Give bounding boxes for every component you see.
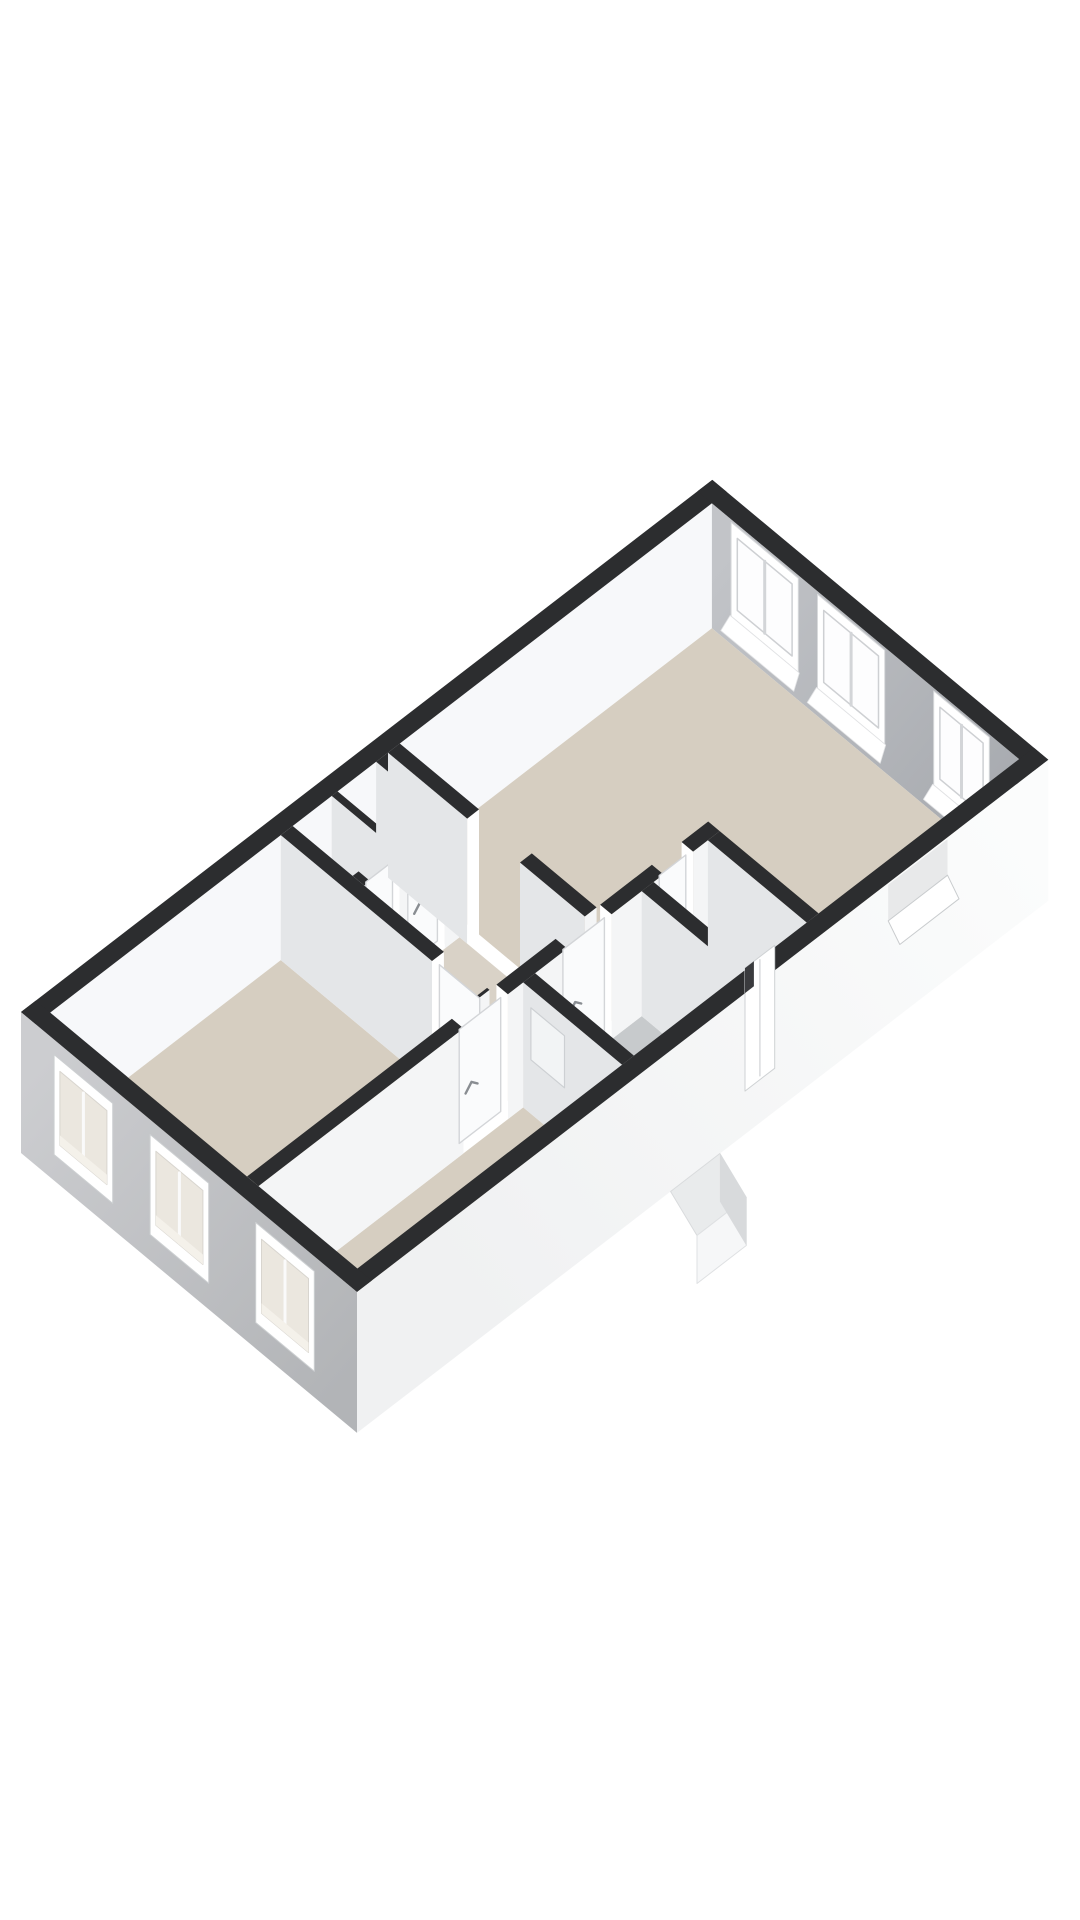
door-jamb bbox=[467, 809, 479, 943]
floor-plan-page bbox=[0, 0, 1080, 1920]
entrance-door-frame bbox=[745, 945, 775, 1091]
floor-plan-svg bbox=[0, 0, 1080, 1920]
